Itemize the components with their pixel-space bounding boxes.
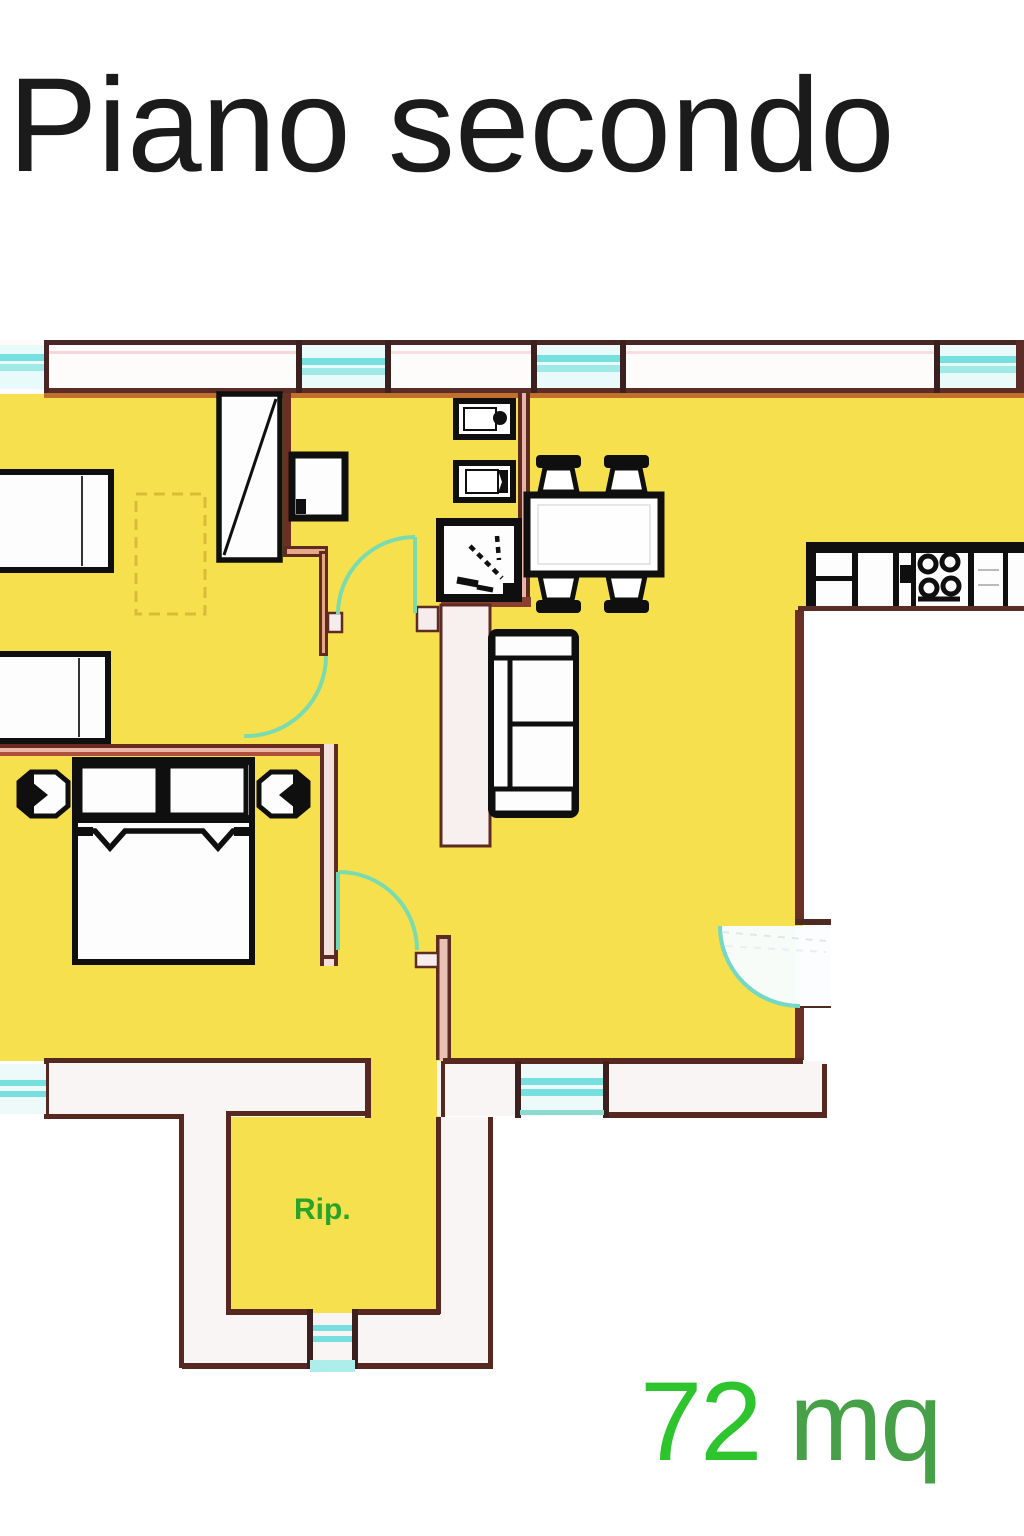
- svg-text:72 mq: 72 mq: [640, 1359, 940, 1484]
- svg-text:Rip.: Rip.: [294, 1193, 351, 1226]
- svg-text:Piano secondo: Piano secondo: [8, 51, 895, 200]
